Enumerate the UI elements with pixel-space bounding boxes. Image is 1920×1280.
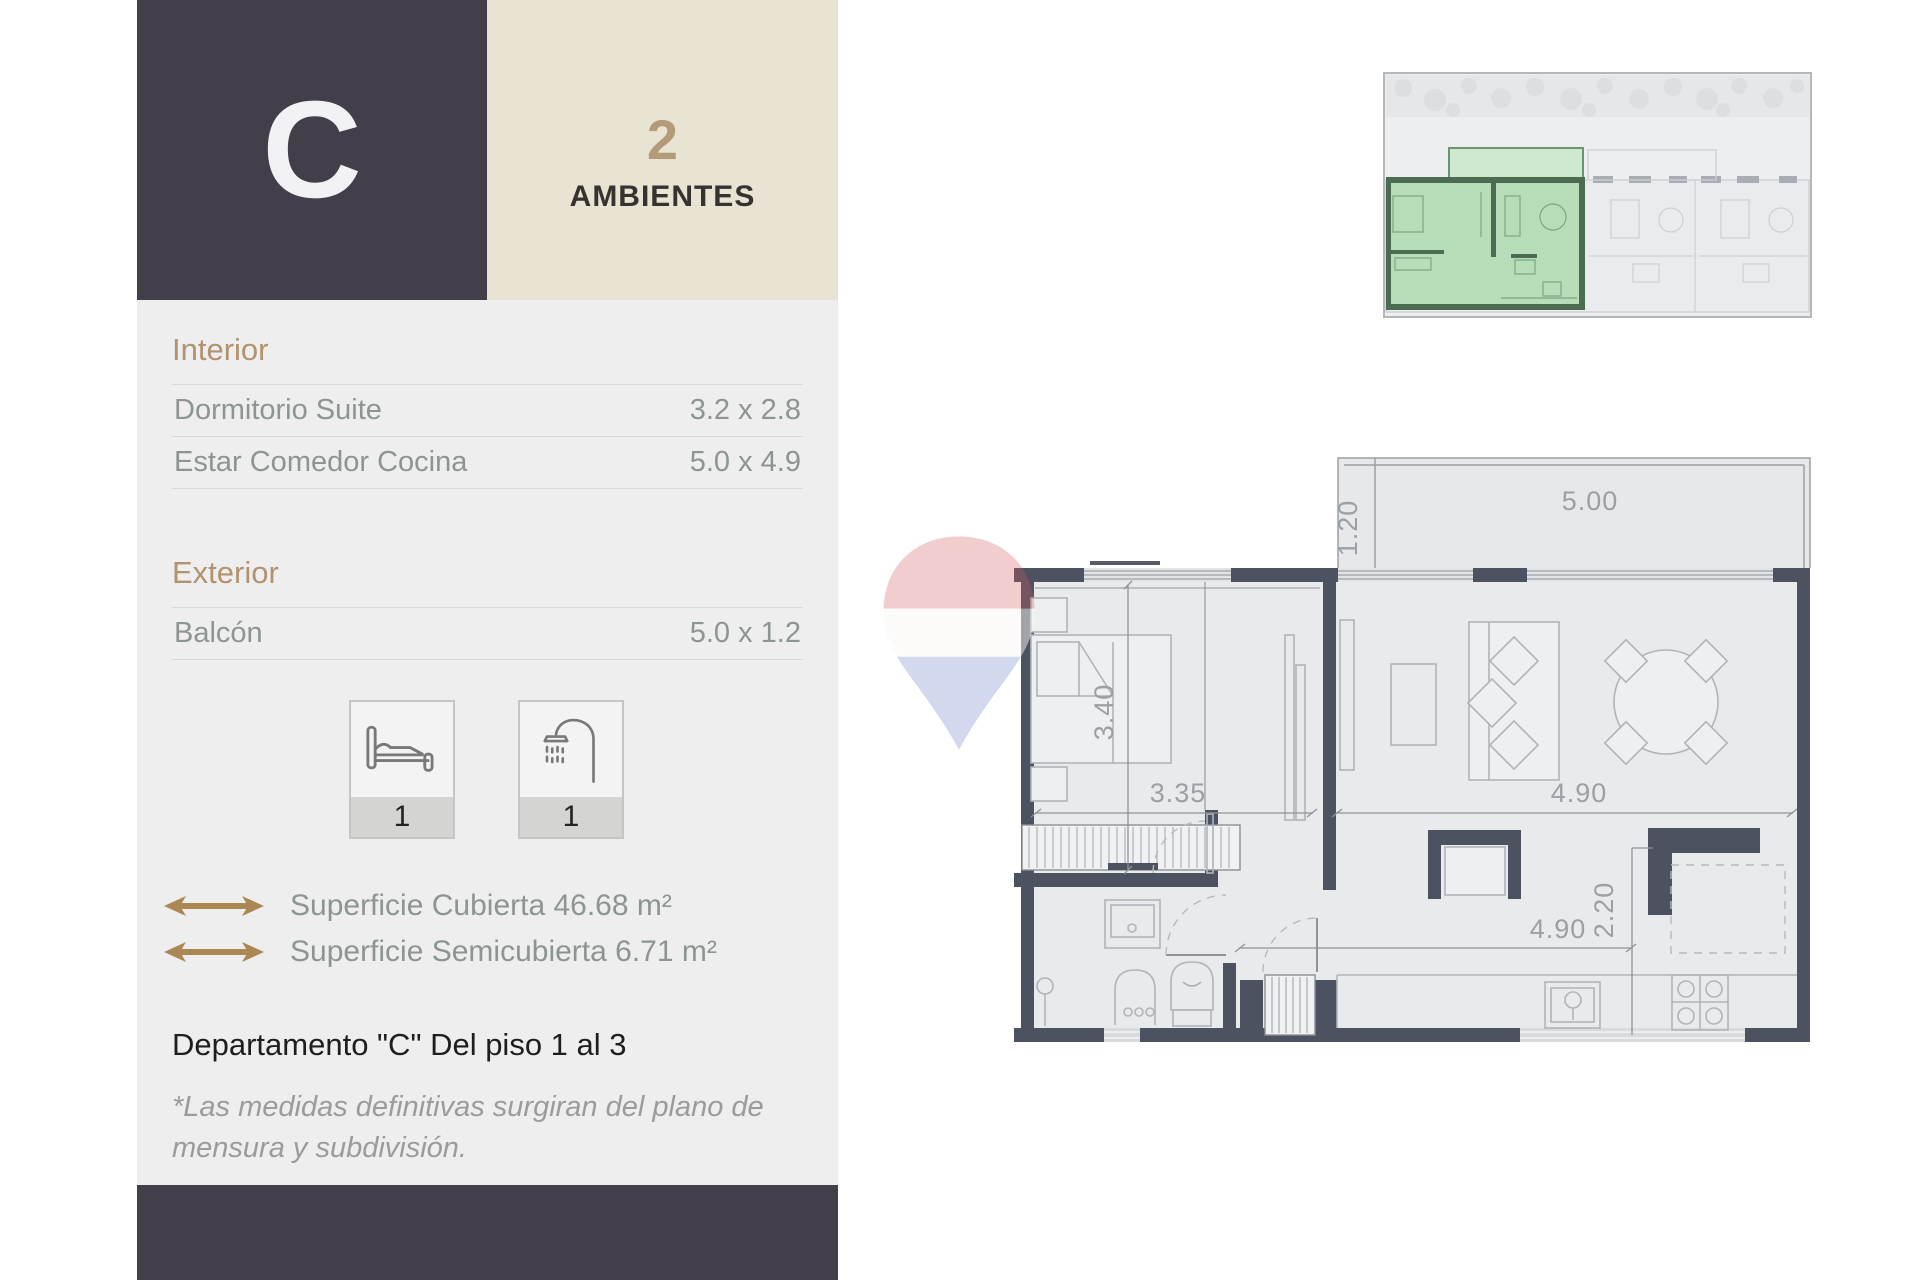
dim-balcony-depth: 1.20 bbox=[1333, 500, 1363, 557]
interior-title: Interior bbox=[172, 300, 803, 368]
balloon-watermark-icon bbox=[873, 533, 1045, 753]
info-panel: C 2 AMBIENTES Interior Dormitorio Suite … bbox=[137, 0, 838, 1280]
dim-kitchen-width: 4.90 bbox=[1530, 914, 1587, 944]
panel-body: Interior Dormitorio Suite 3.2 x 2.8 Esta… bbox=[137, 300, 838, 1185]
table-row: Dormitorio Suite 3.2 x 2.8 bbox=[172, 384, 803, 436]
room-size: 3.2 x 2.8 bbox=[690, 394, 801, 427]
double-arrow-icon bbox=[162, 893, 266, 919]
mini-floor-plan bbox=[1383, 72, 1812, 318]
interior-table: Dormitorio Suite 3.2 x 2.8 Estar Comedor… bbox=[172, 384, 803, 489]
room-size: 5.0 x 4.9 bbox=[690, 446, 801, 479]
room-label: Dormitorio Suite bbox=[174, 394, 382, 427]
brochure-page: C 2 AMBIENTES Interior Dormitorio Suite … bbox=[0, 0, 1920, 1280]
exterior-table: Balcón 5.0 x 1.2 bbox=[172, 607, 803, 660]
table-row: Estar Comedor Cocina 5.0 x 4.9 bbox=[172, 436, 803, 489]
rooms-label: AMBIENTES bbox=[570, 180, 756, 214]
footer-bar bbox=[137, 1185, 838, 1280]
surfaces: Superficie Cubierta 46.68 m² Superficie … bbox=[162, 889, 803, 969]
room-label: Estar Comedor Cocina bbox=[174, 446, 467, 479]
dim-bedroom-width: 3.35 bbox=[1150, 778, 1207, 808]
room-label: Balcón bbox=[174, 617, 263, 650]
dim-kitchen-depth: 2.20 bbox=[1589, 882, 1619, 939]
dim-balcony-width: 5.00 bbox=[1562, 486, 1619, 516]
panel-header: C 2 AMBIENTES bbox=[137, 0, 838, 300]
disclaimer: *Las medidas definitivas surgiran del pl… bbox=[172, 1087, 782, 1169]
surface-label: Superficie Cubierta 46.68 m² bbox=[290, 889, 672, 923]
surface-row: Superficie Cubierta 46.68 m² bbox=[162, 889, 803, 923]
rooms-box: 2 AMBIENTES bbox=[487, 0, 838, 300]
dim-living-width: 4.90 bbox=[1551, 778, 1608, 808]
unit-letter: C bbox=[262, 71, 362, 230]
shower-icon bbox=[520, 702, 622, 797]
table-row: Balcón 5.0 x 1.2 bbox=[172, 607, 803, 660]
floor-note: Departamento "C" Del piso 1 al 3 bbox=[172, 1027, 803, 1063]
unit-letter-box: C bbox=[137, 0, 487, 300]
room-size: 5.0 x 1.2 bbox=[690, 617, 801, 650]
main-floor-plan: 1.20 5.00 bbox=[1013, 450, 1813, 1062]
amenities: 1 1 bbox=[349, 700, 803, 839]
surface-row: Superficie Semicubierta 6.71 m² bbox=[162, 935, 803, 969]
double-arrow-icon bbox=[162, 939, 266, 965]
rooms-count: 2 bbox=[647, 112, 678, 168]
dim-bedroom-depth: 3.40 bbox=[1089, 684, 1119, 741]
surface-label: Superficie Semicubierta 6.71 m² bbox=[290, 935, 717, 969]
bedroom-count: 1 bbox=[351, 797, 453, 837]
exterior-title: Exterior bbox=[172, 489, 803, 591]
bed-icon bbox=[351, 702, 453, 797]
bathroom-amenity: 1 bbox=[518, 700, 624, 839]
bedroom-amenity: 1 bbox=[349, 700, 455, 839]
bathroom-count: 1 bbox=[520, 797, 622, 837]
